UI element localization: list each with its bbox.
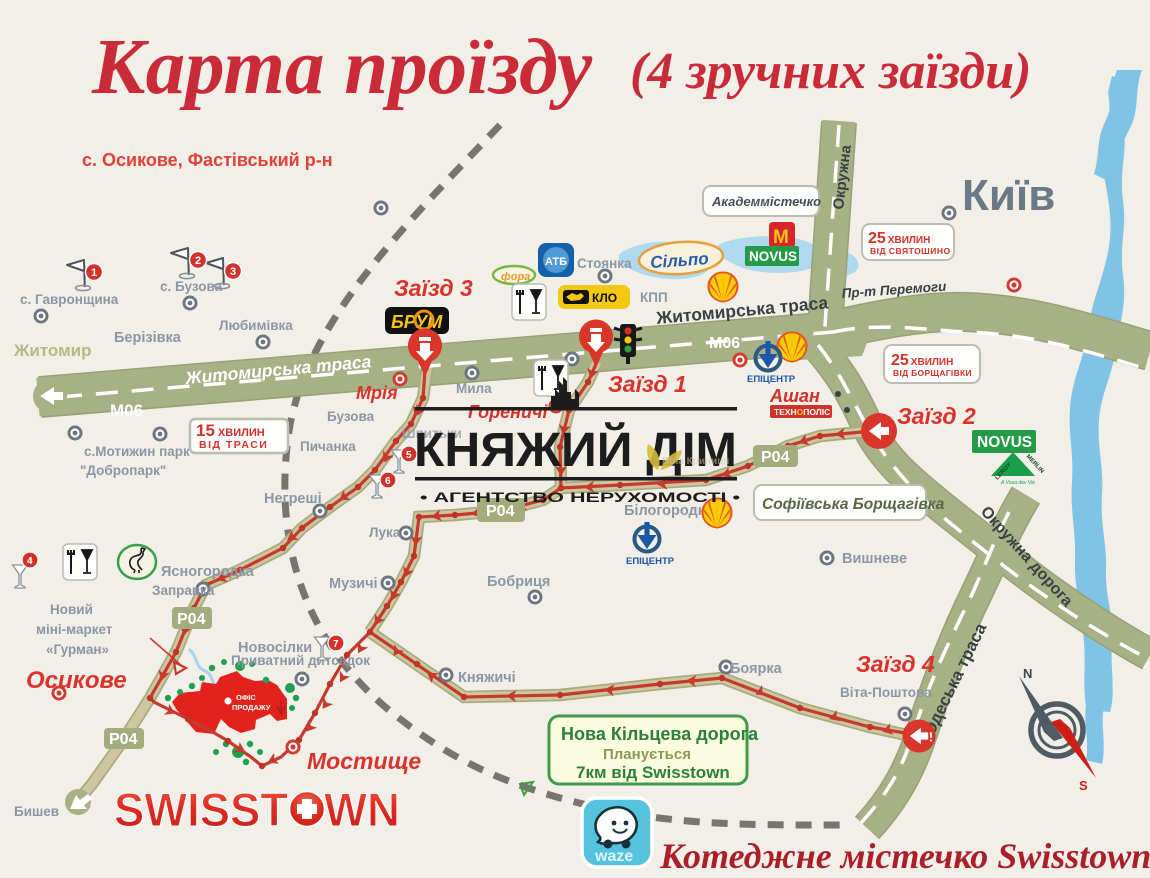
svg-text:АТБ: АТБ — [545, 256, 567, 268]
svg-text:Любимівка: Любимівка — [219, 318, 293, 333]
svg-text:5: 5 — [406, 450, 412, 461]
svg-text:Бобриця: Бобриця — [487, 574, 550, 590]
svg-text:Р04: Р04 — [761, 449, 790, 466]
svg-text:міні-маркет: міні-маркет — [36, 622, 113, 637]
svg-text:Житомир: Житомир — [13, 341, 92, 360]
svg-text:waze: waze — [594, 848, 633, 865]
svg-text:• АГЕНТСТВО НЕРУХОМОСТІ •: • АГЕНТСТВО НЕРУХОМОСТІ • — [420, 490, 740, 505]
svg-text:Лука: Лука — [369, 525, 401, 540]
svg-text:Білогородка: Білогородка — [624, 503, 714, 519]
svg-text:A Voua dev Vie: A Voua dev Vie — [1000, 480, 1035, 486]
svg-text:Осикове: Осикове — [26, 667, 127, 694]
svg-text:Нова Кільцева дорога: Нова Кільцева дорога — [561, 724, 759, 744]
svg-text:Боярка: Боярка — [730, 661, 783, 677]
svg-text:Р04: Р04 — [109, 731, 138, 748]
svg-text:с. Гавронщина: с. Гавронщина — [20, 292, 119, 307]
svg-text:Приватний дитсадок: Приватний дитсадок — [231, 653, 370, 668]
svg-text:Заїзд 1: Заїзд 1 — [608, 371, 687, 397]
svg-text:ВІД СВЯТОШИНО: ВІД СВЯТОШИНО — [870, 246, 951, 256]
svg-text:Ашан: Ашан — [769, 386, 820, 406]
svg-text:WN: WN — [324, 783, 400, 836]
svg-text:2: 2 — [195, 255, 201, 267]
svg-text:КПП: КПП — [640, 290, 668, 305]
svg-text:Стоянка: Стоянка — [577, 256, 632, 271]
svg-text:6: 6 — [385, 476, 391, 487]
svg-text:Заїзд 3: Заїзд 3 — [394, 275, 473, 301]
svg-text:4: 4 — [27, 556, 33, 567]
svg-text:Вишневе: Вишневе — [842, 551, 907, 567]
svg-text:Біла Криниця: Біла Криниця — [662, 456, 729, 467]
svg-text:Ясногородка: Ясногородка — [161, 564, 255, 580]
svg-text:Мила: Мила — [456, 381, 492, 396]
svg-text:Берізівка: Берізівка — [114, 330, 182, 346]
svg-text:М06: М06 — [709, 335, 740, 352]
svg-text:"Добропарк": "Добропарк" — [80, 463, 166, 478]
svg-text:NOVUS: NOVUS — [977, 434, 1032, 451]
svg-text:Пичанка: Пичанка — [300, 439, 356, 454]
svg-text:Заїзд 4: Заїзд 4 — [856, 651, 935, 677]
svg-text:ВІД ТРАСИ: ВІД ТРАСИ — [199, 439, 268, 451]
svg-text:SWISST: SWISST — [114, 783, 288, 836]
svg-text:Планується: Планується — [603, 746, 691, 763]
svg-text:M: M — [773, 227, 789, 248]
svg-text:Софіївська Борщагівка: Софіївська Борщагівка — [762, 496, 945, 513]
svg-text:КЛО: КЛО — [592, 291, 617, 305]
svg-text:с. Осикове, Фастівський р-н: с. Осикове, Фастівський р-н — [82, 150, 333, 170]
svg-text:Заправка: Заправка — [152, 583, 215, 598]
svg-text:Академмістечко: Академмістечко — [711, 194, 821, 209]
svg-text:Заїзд 2: Заїзд 2 — [897, 403, 976, 429]
svg-text:Мостище: Мостище — [307, 748, 421, 774]
svg-text:ТЕХНОПОЛІС: ТЕХНОПОЛІС — [774, 407, 830, 417]
svg-text:ЕПІЦЕНТР: ЕПІЦЕНТР — [747, 374, 796, 385]
svg-text:7км від Swisstown: 7км від Swisstown — [576, 763, 730, 782]
svg-text:ОФІС: ОФІС — [236, 693, 256, 702]
svg-text:с. Бузова: с. Бузова — [160, 279, 223, 294]
svg-text:М06: М06 — [110, 401, 143, 420]
svg-text:«Гурман»: «Гурман» — [46, 642, 109, 657]
svg-text:Київ: Київ — [962, 171, 1055, 220]
svg-text:Карта проїзду: Карта проїзду — [91, 24, 593, 111]
svg-text:Новий: Новий — [50, 602, 93, 617]
svg-text:Віта-Поштова: Віта-Поштова — [840, 685, 932, 700]
svg-text:Р04: Р04 — [177, 611, 206, 628]
svg-text:Гореничі: Гореничі — [468, 402, 549, 422]
svg-text:Негреші: Негреші — [264, 491, 322, 507]
svg-text:(4 зручних заїзди): (4 зручних заїзди) — [630, 43, 1031, 100]
svg-text:1: 1 — [91, 267, 97, 279]
svg-text:Сільпо: Сільпо — [650, 249, 710, 272]
svg-text:Княжичі: Княжичі — [458, 670, 516, 686]
svg-text:ВІД БОРЩАГІВКИ: ВІД БОРЩАГІВКИ — [893, 368, 972, 378]
svg-text:Бишев: Бишев — [14, 804, 59, 819]
svg-text:с.Мотижин парк: с.Мотижин парк — [84, 444, 190, 459]
svg-text:Котеджне містечко Swisstown: Котеджне містечко Swisstown — [659, 836, 1150, 876]
svg-text:S: S — [1079, 778, 1088, 793]
svg-text:7: 7 — [333, 639, 339, 650]
svg-text:N: N — [1023, 666, 1032, 681]
svg-text:КНЯЖИЙ ДІМ: КНЯЖИЙ ДІМ — [414, 422, 737, 477]
svg-text:Бузова: Бузова — [327, 409, 375, 424]
svg-text:Мрія: Мрія — [356, 383, 398, 403]
svg-text:Р04: Р04 — [486, 503, 515, 520]
svg-text:3: 3 — [230, 266, 236, 278]
svg-text:фора: фора — [501, 271, 530, 283]
svg-text:ПРОДАЖУ: ПРОДАЖУ — [232, 703, 271, 712]
svg-text:ЕПІЦЕНТР: ЕПІЦЕНТР — [626, 556, 675, 567]
svg-text:NOVUS: NOVUS — [749, 249, 797, 264]
svg-text:Музичі: Музичі — [329, 576, 378, 592]
